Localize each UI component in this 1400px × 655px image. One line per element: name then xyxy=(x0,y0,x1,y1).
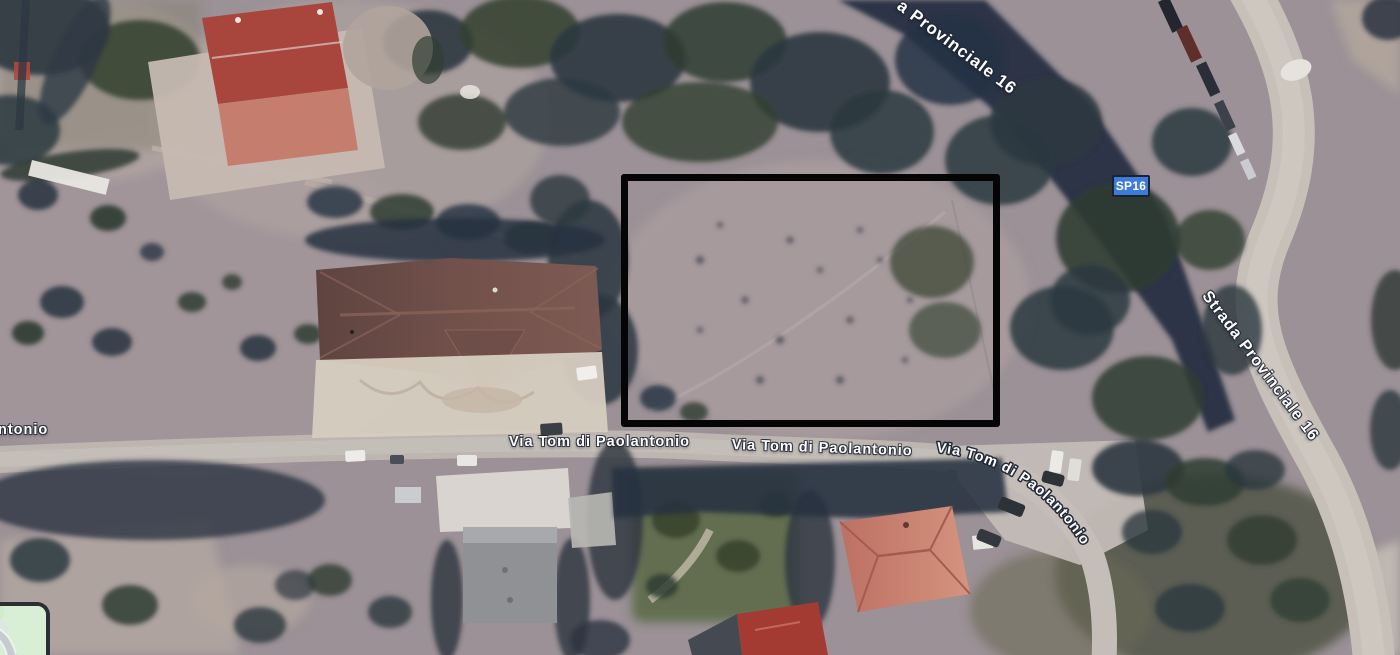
route-badge-sp16: SP16 xyxy=(1112,175,1150,197)
route-badge-label: SP16 xyxy=(1116,179,1147,193)
map-viewport[interactable]: SP16 a Provinciale 16 Strada Provinciale… xyxy=(0,0,1400,655)
minimap-roads xyxy=(0,606,46,655)
map-layer-toggle[interactable] xyxy=(0,602,50,655)
building-center xyxy=(305,218,608,438)
aerial-imagery xyxy=(0,0,1400,655)
